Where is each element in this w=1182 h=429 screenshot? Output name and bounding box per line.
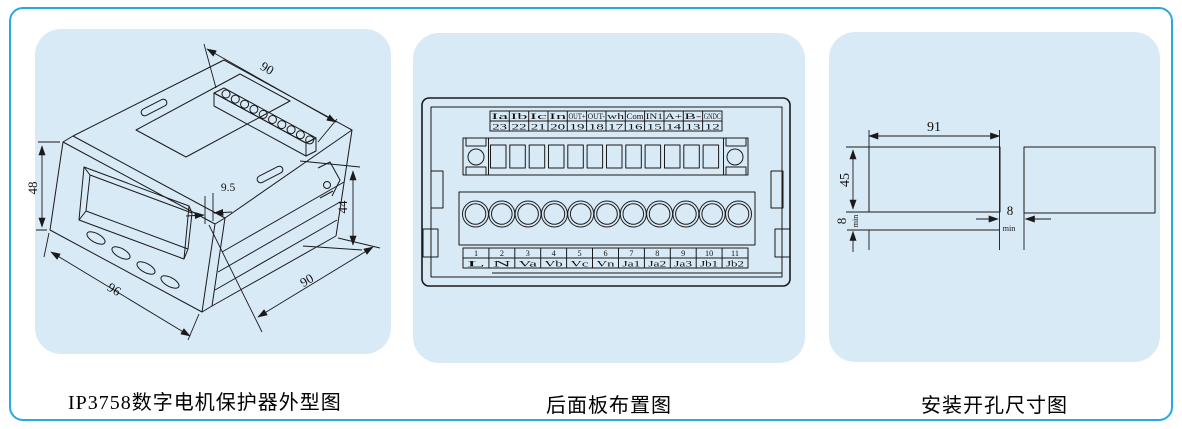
strip-hole	[278, 121, 286, 129]
bottom-terminal-number: 10	[705, 249, 713, 258]
screw-terminal-outer	[463, 201, 489, 227]
screw-terminal-outer	[647, 201, 673, 227]
bottom-terminal-label: Va	[519, 259, 538, 268]
top-face	[73, 60, 352, 218]
strip-hole	[250, 105, 258, 113]
bottom-terminal-number: 8	[655, 249, 659, 258]
square-terminal	[703, 145, 719, 168]
bottom-terminal-number: 11	[731, 249, 739, 258]
screw-hole-right	[727, 149, 743, 165]
screw-terminal-outer	[726, 201, 752, 227]
top-terminal-number: 21	[531, 122, 546, 131]
strip-hole	[231, 95, 239, 103]
dim-vertical-gap-unit: min	[851, 215, 860, 227]
top-terminal-number: 20	[550, 122, 565, 131]
screw-terminal-inner	[728, 204, 749, 225]
square-terminal	[491, 145, 507, 168]
screw-terminal-outer	[699, 201, 725, 227]
cutout-caption: 安装开孔尺寸图	[829, 389, 1160, 418]
bottom-terminal-number: 7	[629, 249, 633, 258]
top-terminal-label: IN1	[646, 112, 663, 121]
top-terminal-label: A+	[665, 112, 683, 121]
top-terminal-label: Com	[627, 112, 645, 121]
top-terminal-number: 13	[686, 122, 701, 131]
bottom-terminal-number: 1	[474, 249, 478, 258]
square-terminal	[529, 145, 545, 168]
cutout-rect-left	[869, 147, 1000, 212]
dim-cutout-width-value: 91	[927, 120, 941, 135]
screw-terminal-inner	[492, 204, 513, 225]
dim-front-height: 48	[25, 142, 60, 230]
strip-hole	[222, 90, 230, 98]
bottom-terminal-label: Vn	[597, 259, 615, 268]
top-terminal-label: Ia	[491, 112, 509, 121]
bottom-terminal-label: Vc	[571, 259, 590, 268]
dim-front-width-value: 96	[105, 279, 124, 299]
dim-top-depth: 90	[204, 44, 337, 142]
dim-bezel-depth-value: 9.5	[221, 182, 236, 194]
top-slot-left	[140, 98, 168, 117]
screw-terminal-inner	[702, 204, 723, 225]
top-terminal-label: wh	[607, 112, 624, 121]
bottom-terminal-table: 1L2N3Va4Vb5Vc6Vn7Ja18Ja29Ja310Jb111Jb2	[463, 248, 748, 268]
dim-front-height-value: 48	[25, 182, 40, 195]
bottom-terminal-number: 6	[603, 249, 607, 258]
technical-drawings: 90 48 96 9.5	[0, 0, 1182, 429]
screw-terminal-outer	[568, 201, 594, 227]
screw-terminal-inner	[570, 204, 591, 225]
cutout-drawing: 91 45 8 min 8 min	[834, 120, 1155, 252]
bottom-terminal-label: L	[467, 259, 485, 268]
top-terminal-number: 16	[628, 122, 643, 131]
dim-vertical-gap: 8 min	[834, 215, 1000, 252]
square-terminal	[568, 145, 584, 168]
screw-terminal-inner	[597, 204, 618, 225]
bottom-terminal-label: Ja2	[648, 259, 666, 268]
screw-terminal-outer	[541, 201, 567, 227]
top-terminal-label: GNDC	[704, 112, 721, 121]
strip-hole	[241, 100, 249, 108]
dim-horizontal-gap-value: 8	[1007, 203, 1014, 218]
cutout-rect-right	[1024, 147, 1155, 213]
screw-terminal-inner	[544, 204, 565, 225]
dim-horizontal-gap: 8 min	[976, 203, 1051, 250]
bottom-terminal-label: Ja1	[622, 259, 640, 268]
outline-caption: IP3758数字电机保护器外型图	[68, 386, 342, 415]
top-terminal-number: 22	[512, 122, 527, 131]
dim-cutout-height: 45	[838, 147, 869, 212]
dim-front-width: 96	[44, 233, 199, 340]
screw-terminal-outer	[620, 201, 646, 227]
bottom-terminal-number: 4	[552, 249, 556, 258]
top-slot-right	[256, 165, 284, 184]
bottom-terminal-label: Jb2	[726, 259, 744, 268]
dim-cutout-height-value: 45	[838, 173, 853, 187]
strip-hole	[269, 116, 277, 124]
screw-terminal-inner	[465, 204, 486, 225]
body-side-grooves	[215, 182, 344, 290]
dim-body-height-value: 44	[335, 200, 350, 214]
strip-hole	[287, 126, 295, 134]
screw-hole-left	[468, 149, 484, 165]
square-terminal	[587, 145, 603, 168]
bottom-terminal-number: 2	[500, 249, 504, 258]
top-terminal-label: OUT+	[569, 112, 586, 121]
screw-terminal-inner	[676, 204, 697, 225]
top-terminal-number: 17	[608, 122, 623, 131]
datasheet-figure-page: 90 48 96 9.5	[0, 0, 1182, 429]
top-terminal-label: Ib	[511, 112, 528, 121]
lower-terminal-strip	[459, 192, 755, 245]
side-tabs	[423, 171, 790, 257]
square-terminal	[549, 145, 565, 168]
dim-body-height: 44	[300, 161, 362, 250]
bottom-terminal-label: Vb	[545, 259, 563, 268]
bottom-terminal-number: 9	[681, 249, 685, 258]
square-terminal	[607, 145, 623, 168]
screw-terminal-inner	[518, 204, 539, 225]
square-terminal	[665, 145, 681, 168]
bezel-slab	[63, 136, 225, 312]
top-terminal-number: 14	[666, 122, 681, 131]
top-terminal-label: In	[549, 112, 566, 121]
dim-top-depth-value: 90	[258, 58, 277, 77]
bottom-terminal-label: Jb1	[700, 259, 718, 268]
top-terminal-label: B-	[685, 112, 703, 121]
top-terminal-number: 15	[647, 122, 662, 131]
top-terminal-table: Ia23Ib22Ic21In20OUT+19OUT-18wh17Com16IN1…	[490, 111, 722, 131]
bottom-terminal-number: 5	[578, 249, 582, 258]
strip-hole	[296, 131, 304, 139]
square-terminal	[626, 145, 642, 168]
rear-terminal-strip	[214, 88, 316, 156]
screw-terminal-outer	[489, 201, 515, 227]
square-terminal	[684, 145, 700, 168]
screw-terminal-inner	[623, 204, 644, 225]
top-terminal-number: 12	[705, 122, 720, 131]
mounting-clip	[318, 162, 340, 198]
dim-horizontal-gap-unit: min	[1003, 224, 1015, 233]
top-terminal-number: 23	[492, 122, 507, 131]
top-terminal-number: 18	[589, 122, 604, 131]
dim-body-depth-value: 90	[297, 270, 316, 290]
square-terminal	[645, 145, 661, 168]
dim-vertical-gap-value: 8	[834, 218, 849, 225]
screw-terminal-outer	[673, 201, 699, 227]
top-terminal-number: 19	[570, 122, 585, 131]
top-terminal-label: Ic	[530, 112, 548, 121]
outline-drawing: 90 48 96 9.5	[25, 44, 380, 340]
upper-terminal-block	[463, 138, 748, 175]
bottom-terminal-number: 3	[526, 249, 530, 258]
screw-terminal-inner	[649, 204, 670, 225]
screw-terminal-outer	[594, 201, 620, 227]
top-terminal-label: OUT-	[588, 112, 605, 121]
bottom-terminal-label: N	[493, 259, 511, 268]
dim-cutout-width: 91	[869, 120, 1000, 250]
rear-panel-drawing: Ia23Ib22Ic21In20OUT+19OUT-18wh17Com16IN1…	[422, 98, 790, 286]
square-terminal	[510, 145, 526, 168]
bottom-terminal-label: Ja3	[674, 259, 692, 268]
screw-terminal-outer	[515, 201, 541, 227]
rear-caption: 后面板布置图	[413, 389, 805, 418]
